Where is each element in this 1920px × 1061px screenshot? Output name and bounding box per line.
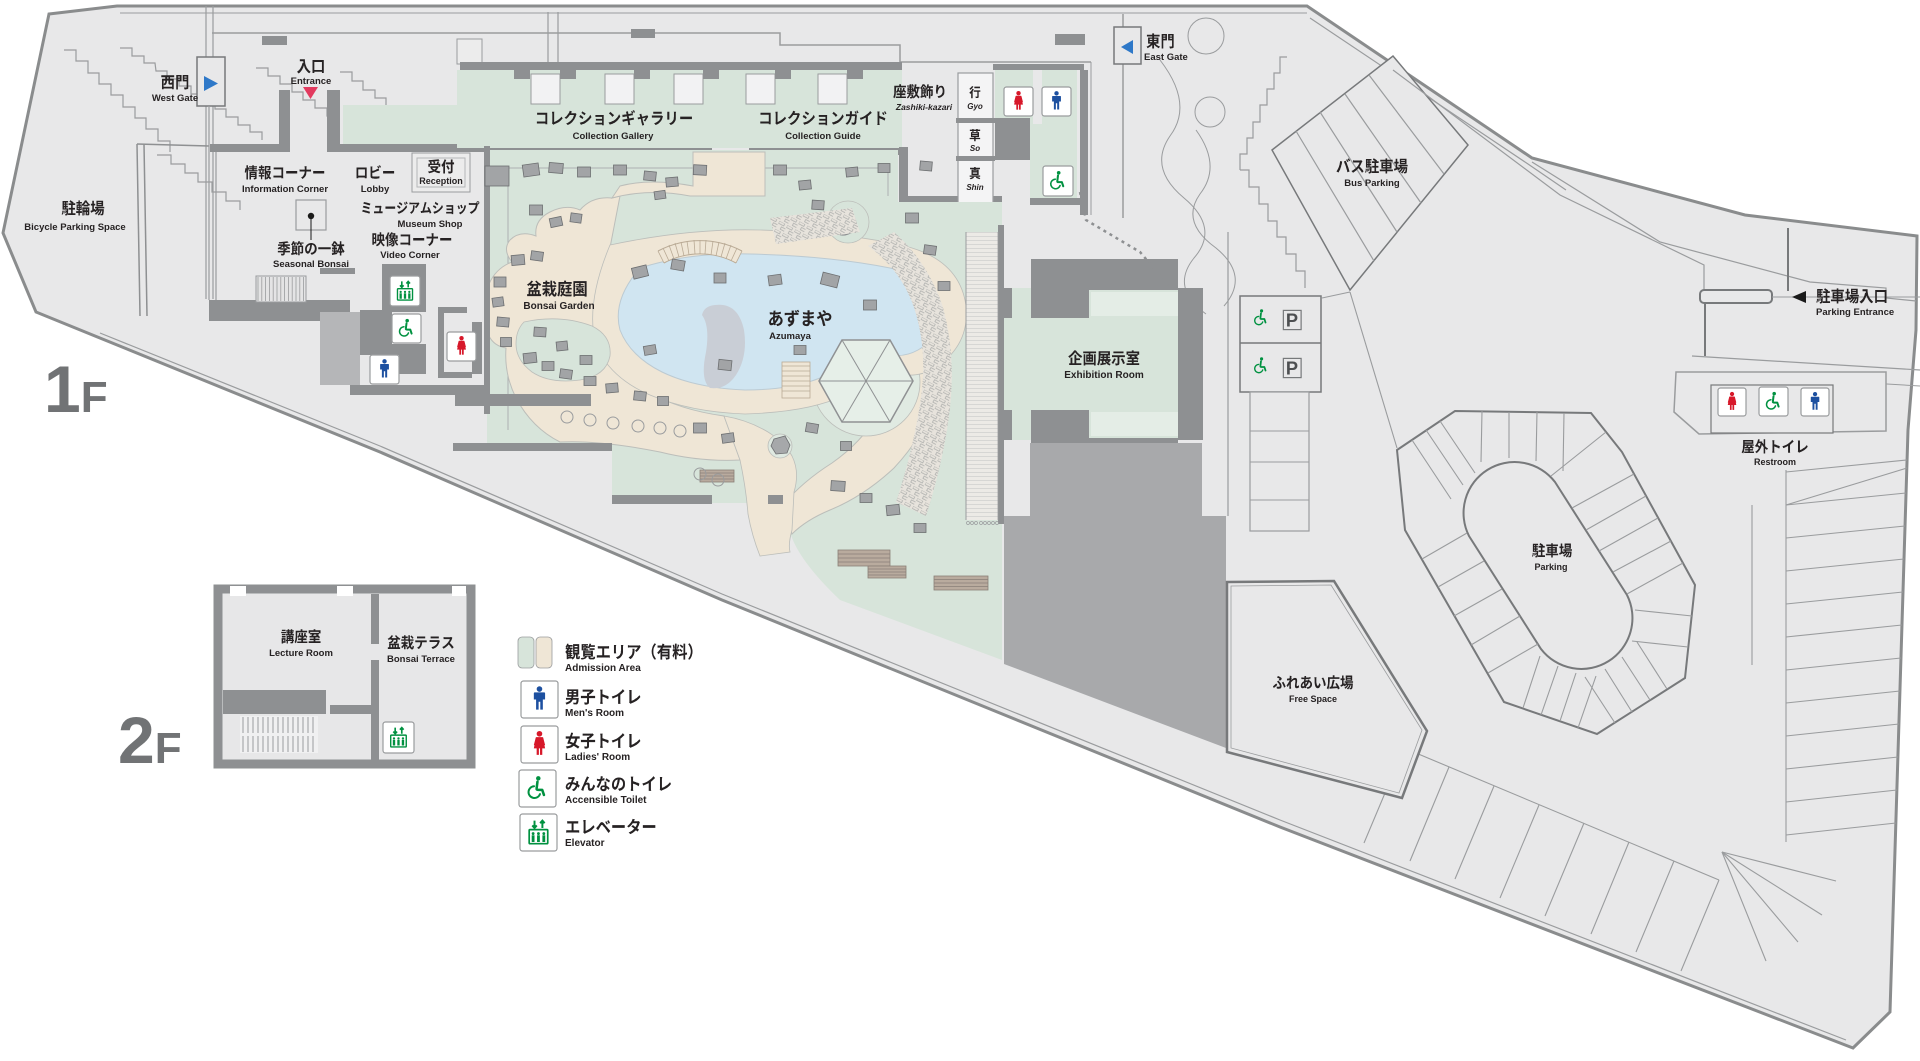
svg-text:Lecture Room: Lecture Room <box>269 648 333 659</box>
svg-text:Bonsai Garden: Bonsai Garden <box>523 301 594 312</box>
svg-text:Bus Parking: Bus Parking <box>1344 178 1400 189</box>
svg-text:Collection Guide: Collection Guide <box>785 131 860 142</box>
svg-text:Azumaya: Azumaya <box>769 331 811 342</box>
svg-text:Parking: Parking <box>1534 562 1567 572</box>
svg-text:Parking Entrance: Parking Entrance <box>1816 307 1894 318</box>
svg-text:Restroom: Restroom <box>1754 457 1796 467</box>
svg-text:Admission Area: Admission Area <box>565 663 641 674</box>
svg-text:Video Corner: Video Corner <box>380 250 440 261</box>
svg-text:Men's Room: Men's Room <box>565 708 624 719</box>
svg-text:West Gate: West Gate <box>152 93 198 104</box>
svg-text:So: So <box>970 144 980 153</box>
svg-text:Zashiki-kazari: Zashiki-kazari <box>895 102 953 112</box>
svg-text:Accensible Toilet: Accensible Toilet <box>565 795 647 806</box>
svg-text:Exhibition Room: Exhibition Room <box>1064 370 1144 381</box>
svg-text:Collection Gallery: Collection Gallery <box>573 131 654 142</box>
svg-text:Reception: Reception <box>419 176 463 186</box>
svg-text:East Gate: East Gate <box>1144 52 1188 63</box>
svg-text:Free Space: Free Space <box>1289 694 1337 704</box>
svg-text:Bonsai Terrace: Bonsai Terrace <box>387 654 455 665</box>
svg-text:Ladies' Room: Ladies' Room <box>565 752 630 763</box>
svg-text:Elevator: Elevator <box>565 838 605 849</box>
svg-text:Shin: Shin <box>966 183 983 192</box>
svg-text:Museum Shop: Museum Shop <box>398 219 463 230</box>
svg-text:Information Corner: Information Corner <box>242 184 328 195</box>
svg-text:Bicycle Parking Space: Bicycle Parking Space <box>24 222 125 233</box>
svg-text:Lobby: Lobby <box>361 184 390 195</box>
svg-text:Gyo: Gyo <box>967 102 983 111</box>
svg-text:Entrance: Entrance <box>291 76 332 87</box>
